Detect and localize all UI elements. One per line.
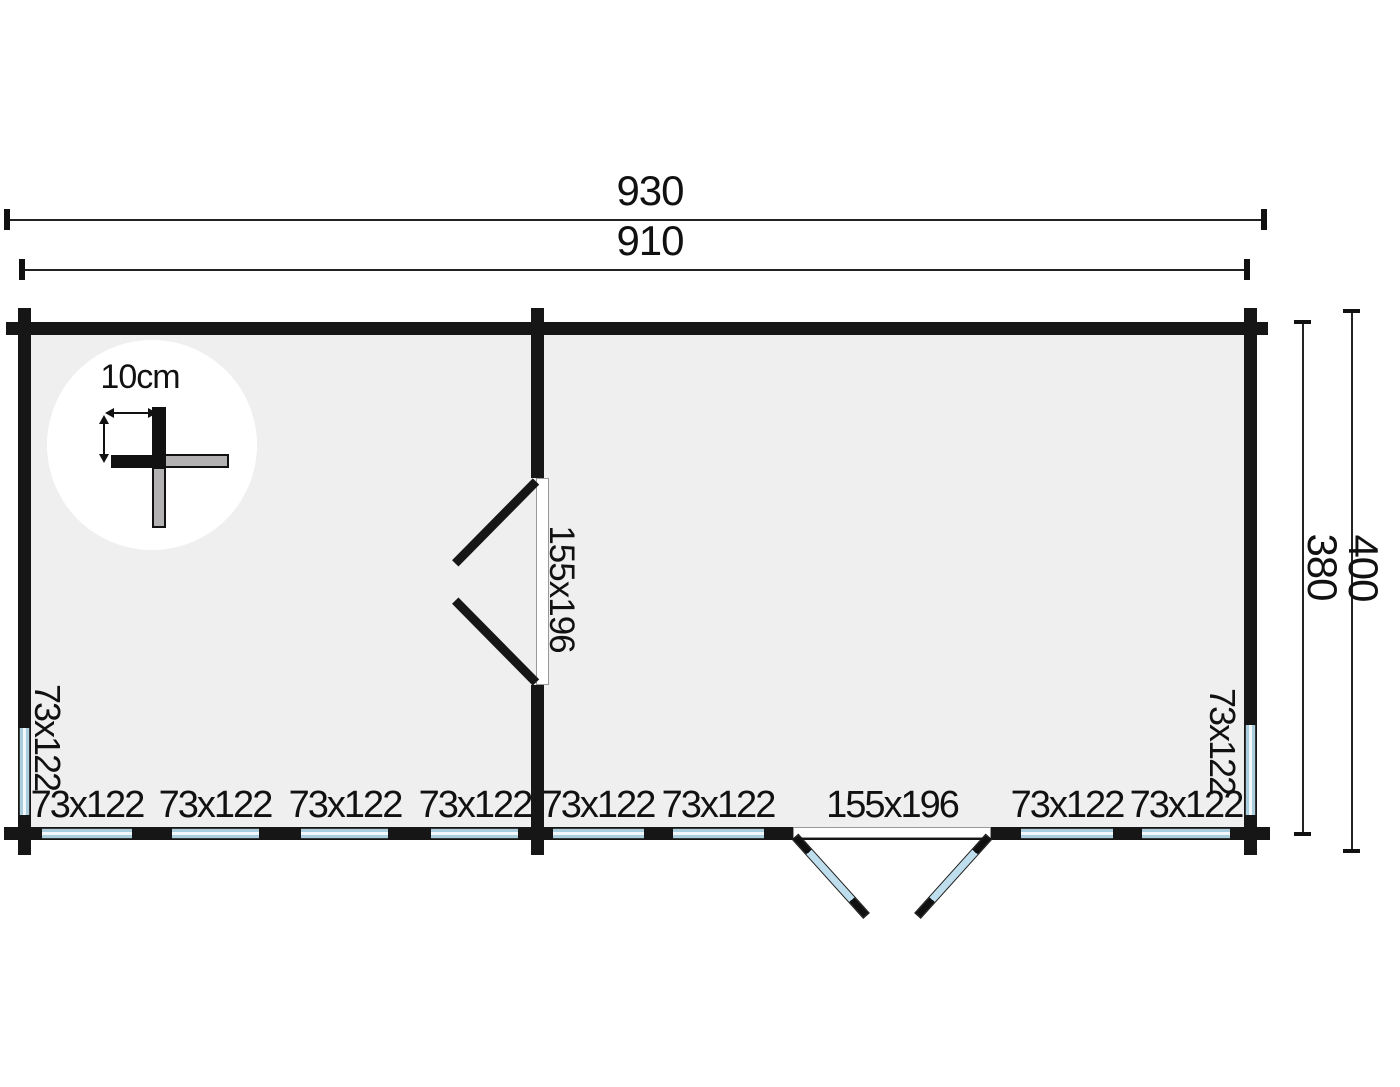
wall-detail-label: 10cm (80, 357, 200, 397)
width-arrow-icon (114, 412, 148, 414)
dim-label-380: 380 (1302, 507, 1342, 627)
dim-cap-930-right (1261, 209, 1267, 230)
label-window-bottom-3: 73x122 (275, 785, 415, 825)
dim-label-400: 400 (1343, 508, 1383, 628)
dim-line-910 (22, 269, 1250, 271)
dim-label-930: 930 (570, 171, 730, 211)
exterior-door-threshold (793, 827, 991, 838)
window-bottom-1 (42, 828, 132, 839)
dim-cap-380-top (1294, 320, 1311, 324)
dim-cap-910-right (1244, 259, 1250, 280)
label-exterior-door: 155x196 (812, 785, 972, 825)
wall-detail-log-end-vertical (152, 467, 166, 528)
label-window-left: 73x122 (27, 677, 67, 797)
floor-plan-canvas: 930 910 380 400 10cm 73x122 73x (0, 0, 1400, 1087)
wall-top (6, 322, 1268, 335)
label-window-bottom-6: 73x122 (648, 785, 788, 825)
label-window-bottom-5: 73x122 (528, 785, 668, 825)
window-bottom-5 (553, 828, 644, 839)
label-interior-door: 155x196 (541, 509, 581, 669)
dim-label-910: 910 (570, 221, 730, 261)
label-window-right: 73x122 (1202, 681, 1242, 801)
exterior-door-leaf-right (914, 833, 992, 919)
window-bottom-6 (673, 828, 764, 839)
dim-cap-400-bottom (1343, 849, 1360, 853)
wall-interior-upper (531, 308, 544, 478)
window-bottom-4 (431, 828, 518, 839)
dim-cap-400-top (1343, 309, 1360, 313)
dim-cap-910-left (19, 259, 25, 280)
height-arrow-icon (103, 424, 105, 454)
window-bottom-8 (1142, 828, 1230, 839)
window-bottom-7 (1021, 828, 1113, 839)
wall-interior-lower (531, 685, 544, 855)
exterior-door-leaf-left (792, 833, 870, 919)
dim-cap-380-bottom (1294, 832, 1311, 836)
window-bottom-3 (301, 828, 388, 839)
wall-detail-log-end-horizontal (164, 454, 229, 468)
label-window-bottom-4: 73x122 (405, 785, 545, 825)
label-window-bottom-2: 73x122 (145, 785, 285, 825)
dim-cap-930-left (4, 209, 10, 230)
window-bottom-2 (172, 828, 259, 839)
